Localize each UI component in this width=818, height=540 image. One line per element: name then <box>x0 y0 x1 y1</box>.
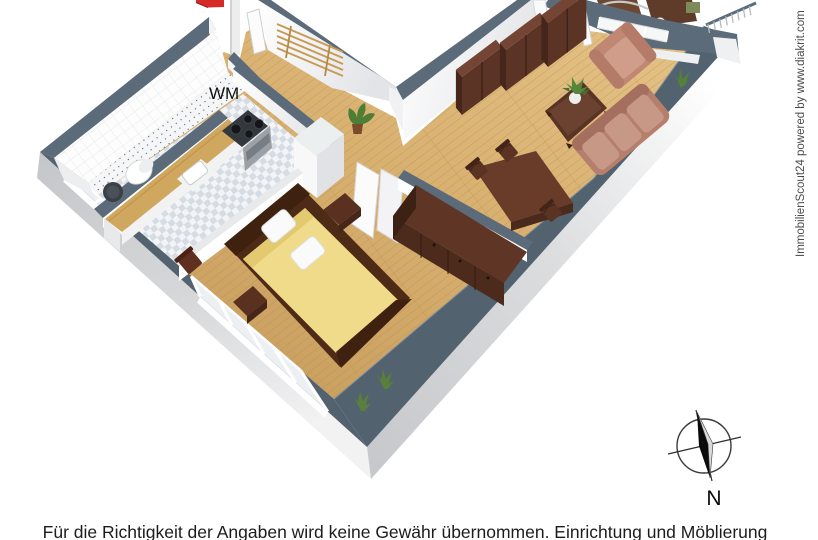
svg-text:Für die Richtigkeit der Angabe: Für die Richtigkeit der Angaben wird kei… <box>43 522 768 540</box>
svg-text:WM: WM <box>209 84 239 103</box>
svg-text:ImmobilienScout24 powered by w: ImmobilienScout24 powered by www.diakrit… <box>795 10 807 257</box>
svg-text:N: N <box>706 487 721 510</box>
